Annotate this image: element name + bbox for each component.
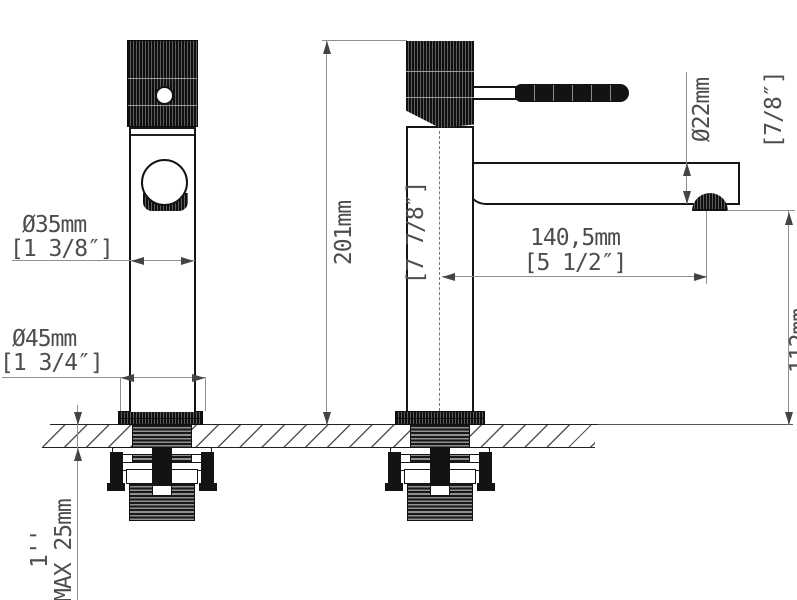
mounting-bolt-foot-left	[107, 483, 125, 491]
mounting-bolt-right	[479, 452, 492, 484]
dim-spout-reach-metric: 140,5mm	[475, 226, 675, 250]
arrowhead	[694, 273, 707, 281]
front-view-base-flange	[118, 411, 203, 425]
extension-line	[205, 378, 206, 411]
countertop-extension-line	[598, 424, 793, 425]
dim-base-diameter-line	[2, 377, 206, 378]
mounting-bolt-left	[110, 452, 123, 484]
mounting-shank-thread	[132, 425, 192, 448]
arrowhead	[683, 191, 691, 204]
dim-total-height-imperial: [7 7/8″]	[404, 174, 428, 292]
arrowhead	[74, 448, 82, 461]
extension-line-outlet-right	[727, 210, 795, 211]
supply-pipe	[152, 447, 172, 485]
arrowhead	[131, 257, 144, 265]
side-view-base-flange	[395, 411, 485, 425]
arrowhead	[192, 374, 205, 382]
front-view-mounting-assembly	[107, 425, 217, 525]
handle-cap-hole	[155, 86, 174, 105]
arrowhead	[683, 163, 691, 176]
arrowhead	[181, 257, 194, 265]
handle-lever-rod	[472, 86, 517, 100]
side-view-mounting-assembly	[385, 425, 495, 525]
dim-body-diameter-imperial: [1 3/8″]	[10, 237, 113, 261]
tailpiece-tab	[152, 485, 172, 496]
dim-max-deck-thickness-label: MAX 25mm	[52, 462, 77, 600]
mounting-shank-thread	[410, 425, 470, 448]
arrowhead	[785, 212, 793, 225]
mounting-bolt-left	[388, 452, 401, 484]
dim-spout-diameter-label: Ø22mm [7/8″]	[642, 68, 688, 152]
arrowhead	[442, 273, 455, 281]
front-view-handle-cap	[127, 40, 198, 127]
arrowhead	[74, 412, 82, 425]
dim-spout-diameter-imperial: [7/8″]	[762, 68, 786, 152]
dim-spout-reach-line	[442, 276, 707, 277]
supply-pipe	[430, 447, 450, 485]
mounting-bolt-foot-right	[477, 483, 495, 491]
dim-spout-diameter-metric: Ø22mm	[690, 68, 714, 152]
mounting-bolt-foot-left	[385, 483, 403, 491]
front-view-cartridge-cap	[141, 159, 188, 206]
handle-lever-grip	[515, 84, 629, 102]
dim-outlet-height-label: 112mm [4 3/8″]	[739, 285, 785, 397]
arrowhead	[323, 41, 331, 54]
neck-seam	[131, 134, 194, 136]
dim-total-height-metric: 201mm	[332, 174, 356, 292]
mounting-bolt-foot-right	[199, 483, 217, 491]
arrowhead	[323, 412, 331, 425]
arrowhead	[121, 374, 134, 382]
arrowhead	[785, 412, 793, 425]
dim-total-height-label: 201mm [7 7/8″]	[284, 174, 330, 292]
dim-outlet-height-metric: 112mm	[787, 285, 797, 397]
dim-base-diameter-metric: Ø45mm	[12, 327, 76, 351]
extension-line-cap-top	[322, 40, 407, 41]
extension-line	[120, 378, 121, 411]
mounting-bolt-right	[201, 452, 214, 484]
dim-body-diameter-metric: Ø35mm	[22, 213, 86, 237]
dim-spout-reach-imperial: [5 1/2″]	[475, 251, 675, 275]
dim-body-diameter-line	[12, 260, 195, 261]
dim-thread-size-label: 1''	[28, 522, 52, 568]
tailpiece-tab	[430, 485, 450, 496]
technical-drawing-faucet: Ø35mm [1 3/8″] Ø45mm [1 3/4″] 201mm [7 7…	[0, 0, 797, 600]
side-view-handle-cap	[406, 41, 474, 128]
dim-base-diameter-imperial: [1 3/4″]	[0, 351, 103, 375]
